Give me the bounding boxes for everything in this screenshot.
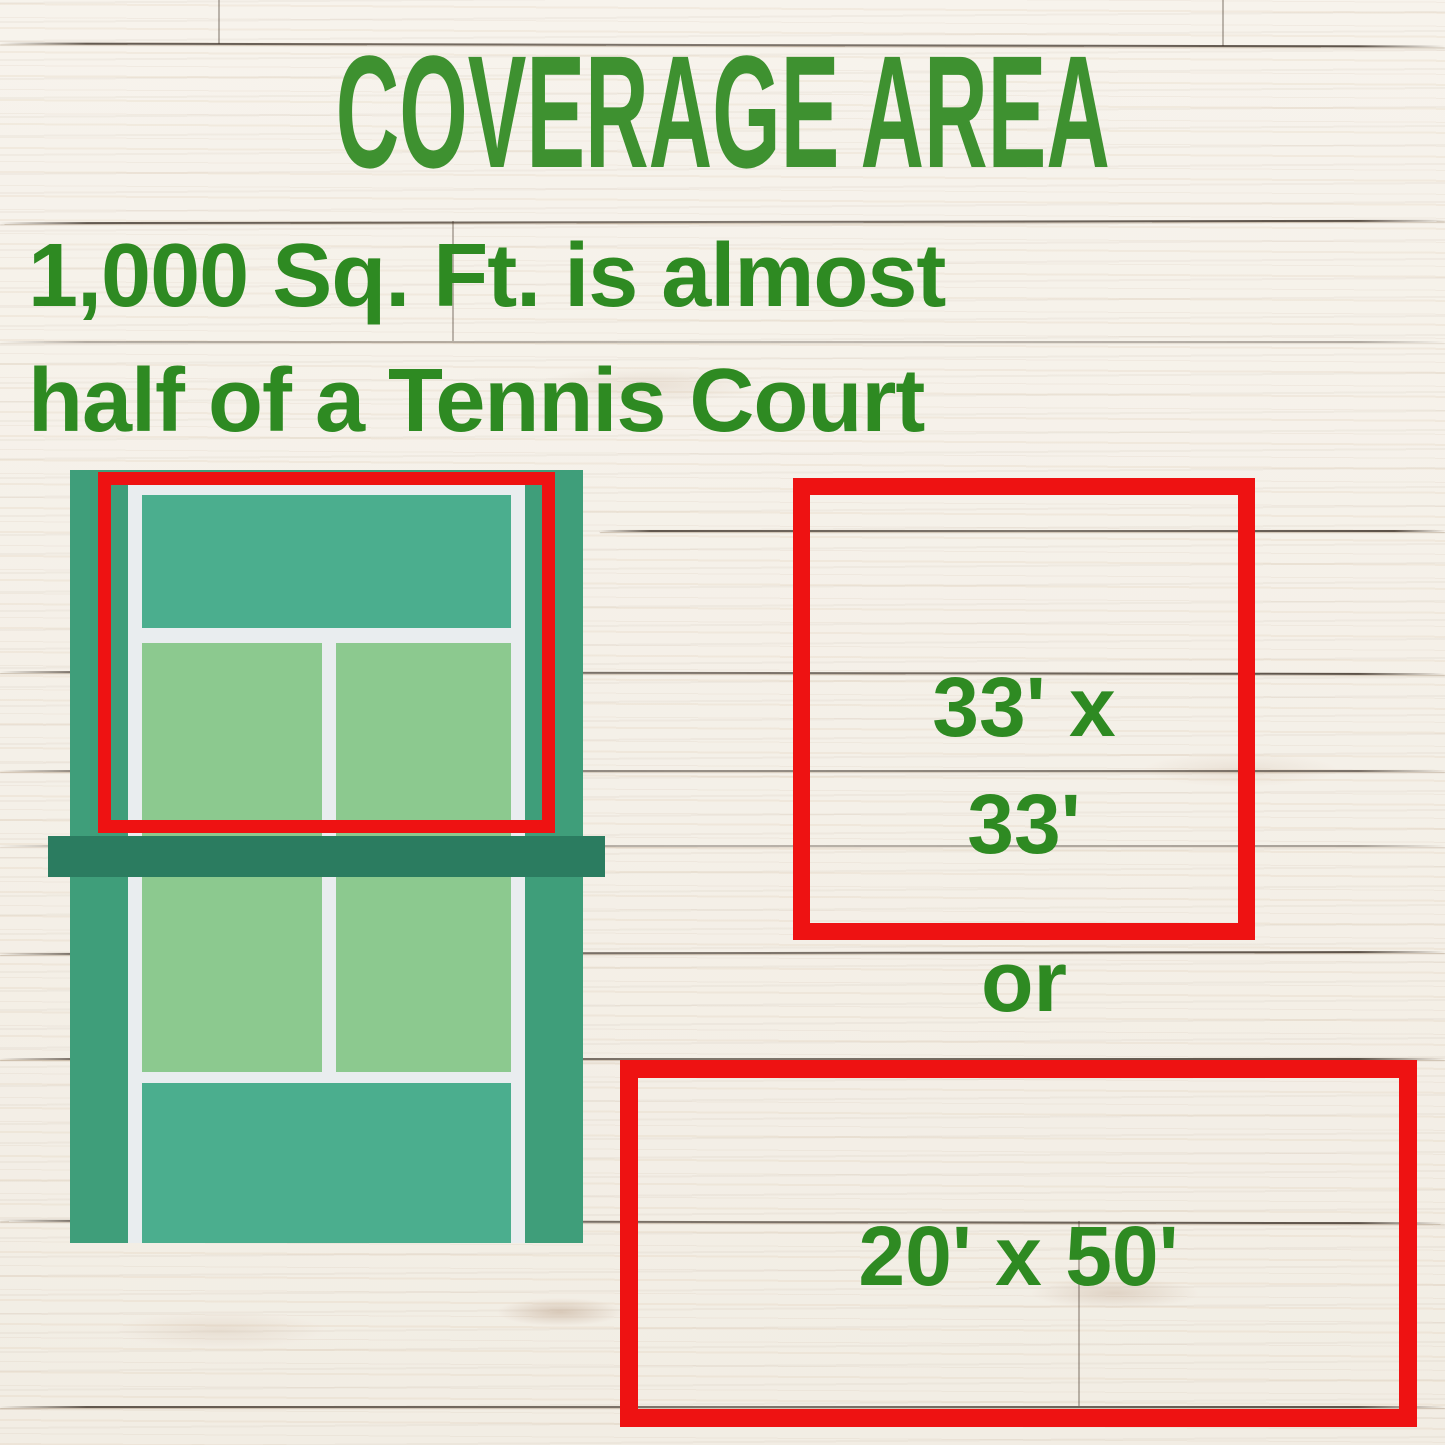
coverage-option-rect-20x50: 20' x 50' [620, 1060, 1417, 1427]
coverage-area-infographic: COVERAGE AREA 1,000 Sq. Ft. is almost ha… [0, 0, 1445, 1445]
page-title-text: COVERAGE AREA [335, 32, 1109, 192]
subtitle-line1: 1,000 Sq. Ft. is almost [28, 231, 945, 321]
court-service-line-bottom [142, 1072, 511, 1083]
court-backcourt-bottom [142, 1083, 511, 1243]
square-dimension-line1: 33' x [810, 665, 1238, 749]
page-title: COVERAGE AREA [0, 32, 1445, 192]
court-center-line-lower [322, 877, 336, 1072]
rect-dimension-label: 20' x 50' [638, 1214, 1399, 1298]
coverage-option-square-33x33: 33' x 33' [793, 478, 1255, 940]
plank-divider [0, 220, 1445, 225]
subtitle-line2: half of a Tennis Court [28, 356, 924, 446]
or-separator-label: or [793, 939, 1255, 1025]
coverage-highlight-on-court [98, 472, 555, 833]
square-dimension-line2: 33' [810, 782, 1238, 866]
court-net [48, 836, 605, 877]
plank-divider [0, 341, 1445, 343]
